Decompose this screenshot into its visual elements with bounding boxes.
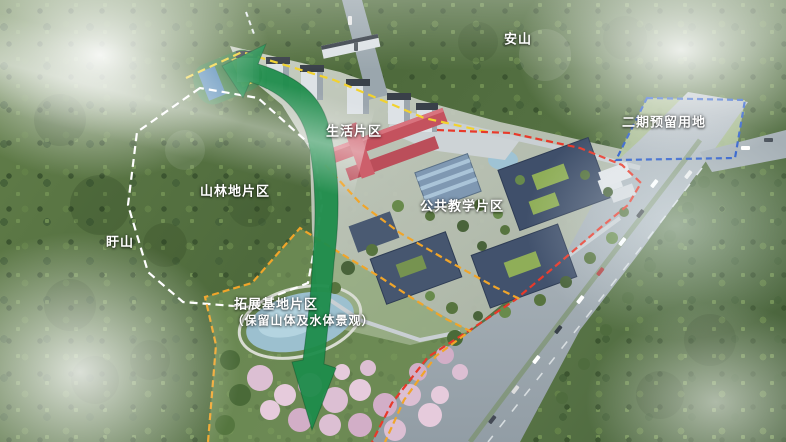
label-teaching-zone: 公共教学片区 <box>420 196 504 215</box>
label-forest-zone: 山林地片区 <box>200 181 270 200</box>
aerial-render-artwork <box>0 0 786 442</box>
label-expansion-zone-line1: 拓展基地片区 <box>234 294 318 313</box>
label-mountain-anshan: 安山 <box>504 29 532 48</box>
label-expansion-zone-line2: （保留山体及水体景观） <box>231 312 374 329</box>
label-mountain-xushan: 盱山 <box>106 232 134 251</box>
campus-masterplan-rendering: 安山 盱山 生活片区 山林地片区 公共教学片区 二期预留用地 拓展基地片区 （保… <box>0 0 786 442</box>
label-phase2-zone: 二期预留用地 <box>622 112 706 131</box>
label-living-zone: 生活片区 <box>326 121 382 140</box>
road-stripe <box>246 12 254 34</box>
